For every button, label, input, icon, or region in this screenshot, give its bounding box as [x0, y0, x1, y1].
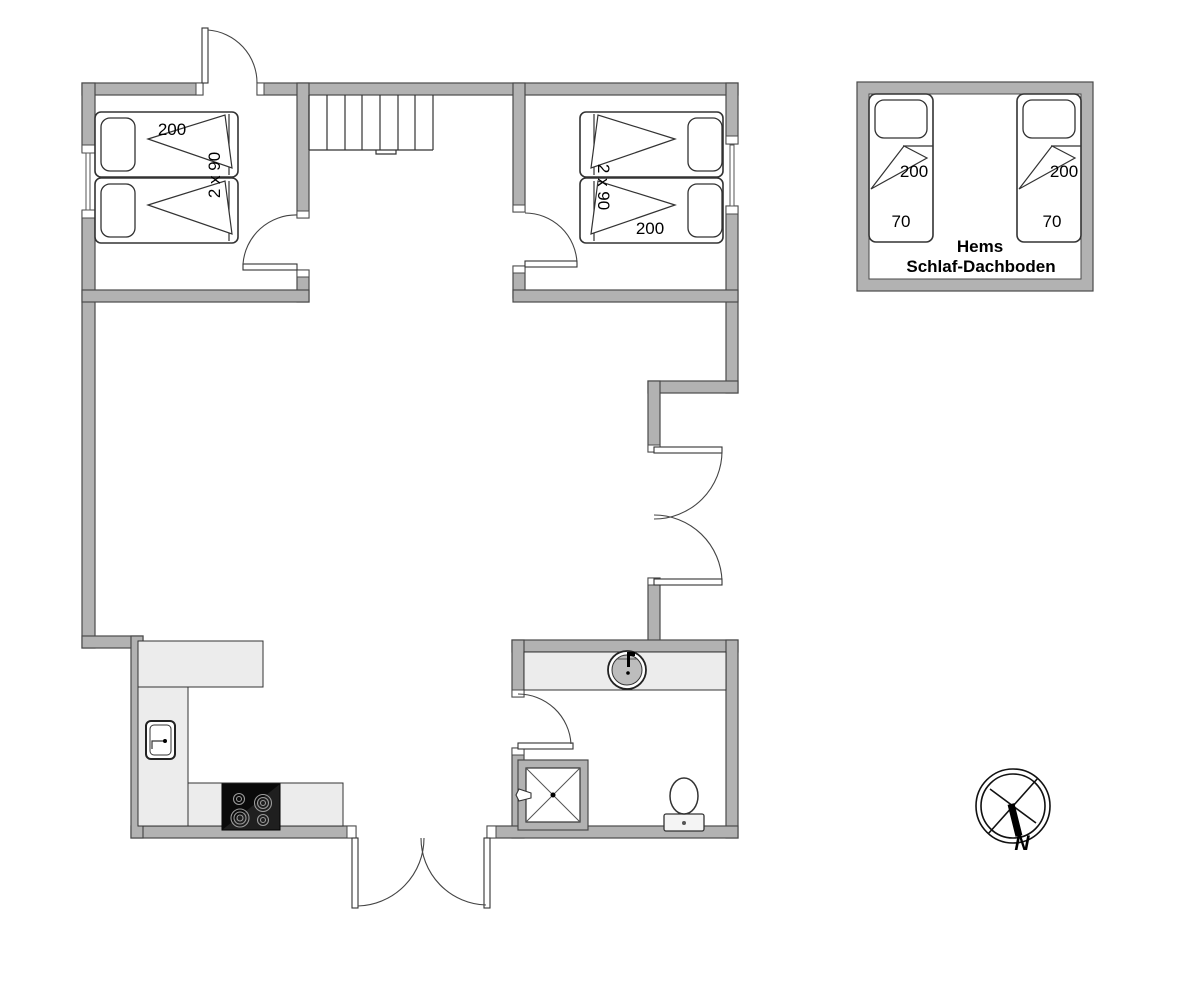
bedroom2-door-leaf — [525, 261, 577, 267]
terrace-door-leaf-top — [654, 447, 722, 453]
window-jamb — [726, 136, 738, 144]
hems-room-name-line2: Schlaf-Dachboden — [906, 257, 1055, 276]
wall-bedroom2-left-upper — [513, 83, 525, 212]
bedroom1-door-leaf — [243, 264, 297, 270]
window-jamb — [82, 210, 95, 218]
wall-bedroom1-right-upper — [297, 83, 309, 218]
patio-door-swing-left — [358, 838, 424, 906]
bathroom-door-swing — [518, 694, 571, 744]
bed-length-label: 200 — [158, 120, 186, 139]
wall-bathroom-left-upper — [512, 640, 524, 697]
bed-size-label: 2 x 90 — [205, 152, 224, 198]
wall-top-left — [82, 83, 203, 95]
wall-bedroom2-bottom — [513, 290, 738, 302]
wall-bathroom-top — [512, 640, 738, 652]
kitchen-sink-basin — [150, 725, 171, 755]
wall-recess-vertical-upper — [648, 381, 660, 452]
bed-size-label: 2 x 90 — [594, 164, 613, 210]
pillow — [1023, 100, 1075, 138]
sink-drain — [626, 671, 630, 675]
patio-door-swing-right — [421, 838, 486, 905]
bathroom-door-leaf — [518, 743, 573, 749]
hems-room: 200 70 200 70 Hems Schlaf-Dachboden — [857, 82, 1093, 291]
stair-treads — [309, 95, 433, 150]
terrace-door-swing-top — [654, 451, 722, 519]
north-label: N — [1014, 832, 1030, 855]
bed-length-label: 200 — [1050, 162, 1078, 181]
compass: N — [976, 769, 1050, 855]
pillow — [101, 118, 135, 171]
floor-plan-page: 200 2 x 90 2 x 90 200 — [0, 0, 1196, 986]
entrance-door-swing — [208, 30, 257, 83]
pillow — [688, 118, 722, 171]
door-jamb — [487, 826, 496, 838]
bed-width-label: 70 — [892, 212, 911, 231]
patio-door-leaf-right — [484, 838, 490, 908]
patio-door-leaf-left — [352, 838, 358, 908]
window-jamb — [82, 145, 95, 153]
wall-right-upper-a — [726, 83, 738, 144]
door-jamb — [196, 83, 203, 95]
stair-nose — [376, 150, 396, 154]
wall-right-lower — [726, 640, 738, 838]
door-jamb — [513, 266, 525, 273]
floor-plan-drawing: 200 2 x 90 2 x 90 200 — [0, 0, 1196, 986]
toilet-bowl — [670, 778, 698, 814]
door-jamb — [257, 83, 264, 95]
terrace-door-swing-bottom — [654, 515, 722, 581]
entrance-door-leaf — [202, 28, 208, 83]
shower-drain — [551, 793, 556, 798]
wall-left-upper — [82, 83, 95, 152]
window-bedroom1-left — [86, 153, 90, 210]
terrace-door-leaf-bottom — [654, 579, 722, 585]
bedroom1-beds: 200 2 x 90 — [95, 112, 238, 243]
pillow — [688, 184, 722, 237]
wall-recess-horizontal — [648, 381, 738, 393]
wall-bedroom1-bottom — [82, 290, 309, 302]
kitchen-counter-top — [138, 641, 263, 687]
bed-width-label: 70 — [1043, 212, 1062, 231]
bedroom2-beds: 2 x 90 200 — [580, 112, 723, 243]
toilet-flush-button — [682, 821, 686, 825]
wall-top-right — [257, 83, 738, 95]
stairs — [309, 95, 433, 154]
kitchen — [138, 641, 343, 830]
pillow — [101, 184, 135, 237]
bed-length-label: 200 — [636, 219, 664, 238]
kitchen-faucet-spout — [163, 739, 167, 743]
window-jamb — [726, 206, 738, 214]
wall-left-lower — [82, 211, 95, 648]
bedroom1-door-swing — [243, 215, 297, 264]
door-jamb — [297, 270, 309, 277]
pillow — [875, 100, 927, 138]
hems-room-name-line1: Hems — [957, 237, 1003, 256]
door-jamb — [297, 211, 309, 218]
bedroom2-door-swing — [525, 213, 577, 263]
bed-length-label: 200 — [900, 162, 928, 181]
door-jamb — [347, 826, 356, 838]
door-jamb — [513, 205, 525, 212]
window-bedroom2-right — [730, 145, 734, 206]
bathroom — [516, 651, 726, 831]
